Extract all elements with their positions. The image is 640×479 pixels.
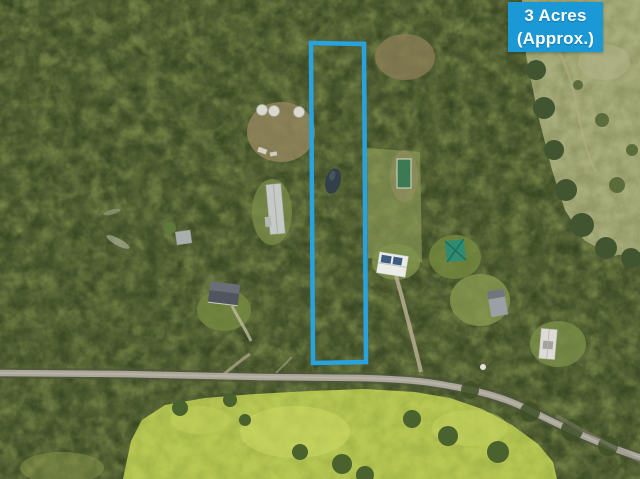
dirt-clearing-top xyxy=(375,34,435,80)
green-court xyxy=(397,159,411,188)
aerial-property-photo: 3 Acres (Approx.) xyxy=(0,0,640,479)
house-teal-roof xyxy=(445,239,466,262)
acreage-badge-line1: 3 Acres xyxy=(524,4,586,27)
house-southwest xyxy=(208,281,240,305)
house-bottom xyxy=(539,328,558,359)
garden-bush xyxy=(164,222,176,234)
house-right-solar xyxy=(376,252,408,277)
roadside-marker xyxy=(480,364,486,370)
acreage-badge: 3 Acres (Approx.) xyxy=(508,2,603,52)
shed-left xyxy=(175,230,192,245)
scene-svg xyxy=(0,0,640,479)
acreage-badge-line2: (Approx.) xyxy=(517,27,594,50)
